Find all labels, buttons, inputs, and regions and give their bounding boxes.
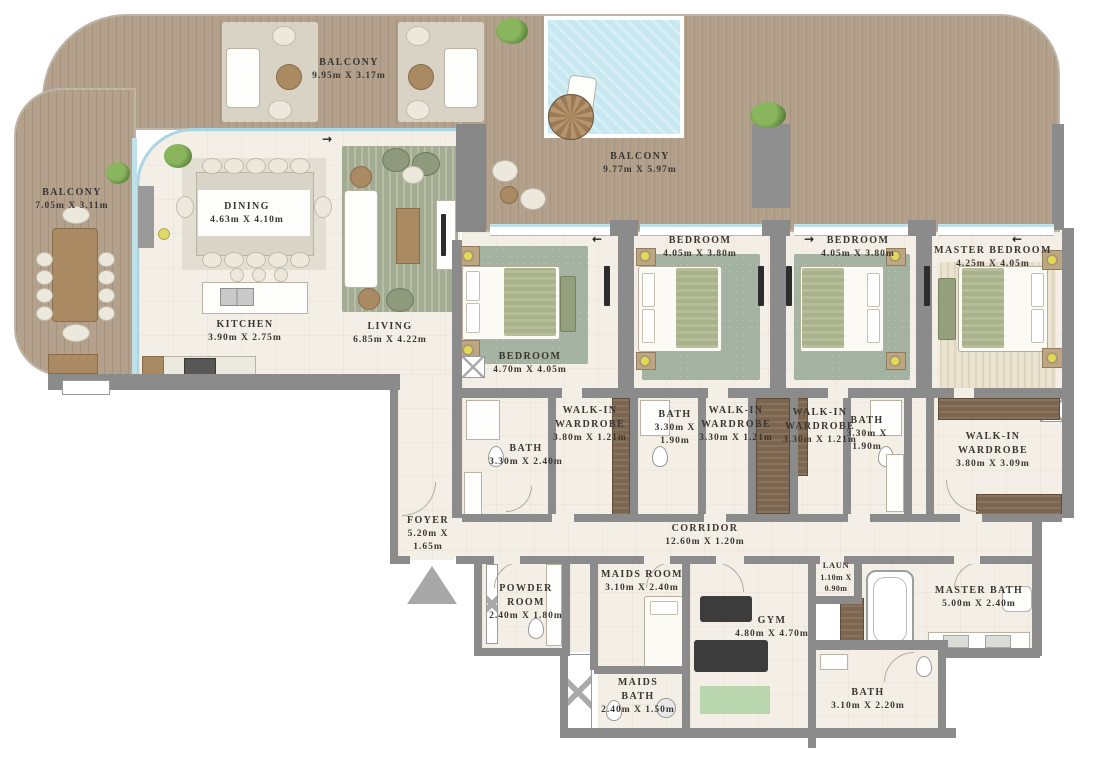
side-table [350,166,372,188]
room-label-wardrobe-2: WALK-IN WARDROBE3.30m X 1.21m [698,404,774,445]
console-cabinet [138,186,154,248]
room-label-powder-room: POWDER ROOM2.40m X 1.80m [486,582,566,623]
wall [452,240,462,388]
vanity [820,654,848,670]
wall-pier [610,220,638,236]
bar-stool [252,268,266,282]
wardrobe-unit [938,398,1060,420]
wall [560,728,956,738]
room-label-balcony-left: BALCONY7.05m X 3.11m [22,186,122,213]
room-label-laundry: LAUN1.10m X 0.90m [812,560,860,594]
outdoor-chair [62,324,90,342]
maids-bed [644,596,684,672]
outdoor-chair [98,288,115,303]
wall [452,388,462,518]
room-label-foyer: FOYER5.20m X 1.65m [399,514,457,554]
room-label-maids-room: MAIDS ROOM3.10m X 2.40m [596,568,688,595]
gym-mat [700,686,770,714]
dining-chair [290,252,310,268]
door-opening [552,514,574,522]
living-armchair [386,288,414,312]
wall-pier [456,124,486,232]
dining-chair [246,252,266,268]
wall [618,232,634,388]
door-opening [704,514,726,522]
wall [390,388,398,512]
tv-icon [441,214,446,256]
room-label-balcony-top: BALCONY9.95m X 3.17m [289,56,409,83]
balcony-chair [492,160,518,182]
wall [560,648,568,738]
outdoor-chair [36,306,53,321]
lamp-icon [462,344,474,356]
wall [944,648,1040,658]
dining-chair [224,252,244,268]
lamp-icon [889,355,901,367]
planter-box [752,124,790,208]
wall [926,396,934,516]
vanity [464,472,482,516]
door-opening [954,556,980,564]
lamp-icon [639,355,651,367]
shower [886,454,904,512]
bedroom3-blanket [802,268,844,348]
wall [808,596,862,604]
treadmill [694,640,768,672]
tv-icon [758,266,764,306]
plant-icon [164,144,192,168]
room-label-wardrobe-1: WALK-IN WARDROBE3.80m X 1.21m [550,404,630,445]
balcony-sofa [226,48,260,108]
room-label-maids-bath: MAIDS BATH2.40m X 1.50m [600,676,676,717]
room-label-living: LIVING6.85m X 4.22m [340,320,440,347]
balcony-chair [406,100,430,120]
floor-plan: → ← → ← BALCONY9.95m X 3.17m BALCONY7.05… [0,0,1102,758]
kitchen-sink [220,288,254,306]
bathtub [866,570,914,650]
toilet-icon [652,446,668,467]
wall [1052,124,1064,230]
lamp-icon [1046,352,1058,364]
wall [770,232,786,388]
outdoor-chair [98,252,115,267]
kitchen-cabinet [142,356,164,376]
room-label-bedroom-2: BEDROOM4.05m X 3.80m [645,234,755,261]
outdoor-chair [36,270,53,285]
plant-icon [496,18,528,44]
wall [630,396,638,516]
door-opening [960,514,982,522]
outdoor-chair [36,288,53,303]
outdoor-chair [36,252,53,267]
dining-chair [290,158,310,174]
tv-icon [604,266,610,306]
balcony-round-table [408,64,434,90]
wall [1032,514,1042,558]
balcony-sofa [444,48,478,108]
room-label-bath-3: BATH3.30m X 1.90m [834,414,900,454]
wall [474,558,482,656]
outdoor-chair [98,306,115,321]
door-opening [708,388,728,398]
balcony-chair [406,26,430,46]
room-label-dining: DINING4.63m X 4.10m [192,200,302,227]
dining-chair [268,158,288,174]
room-label-master-bath: MASTER BATH5.00m X 2.40m [918,584,1040,611]
door-opening [716,556,744,564]
dining-chair [268,252,288,268]
entrance-arrow [407,566,457,604]
kitchen-island [202,282,308,314]
credenza [48,354,98,374]
room-label-master-wardrobe: WALK-IN WARDROBE3.80m X 3.09m [942,430,1044,471]
master-blanket [962,268,1004,348]
wall [474,648,570,656]
glass-wall [132,138,137,374]
dining-chair [224,158,244,174]
wall [808,640,948,650]
umbrella-icon [548,94,594,140]
room-label-bedroom-1: BEDROOM4.70m X 4.05m [477,350,583,377]
balcony-round-table [500,186,518,204]
wall-pier [762,220,790,236]
wall-tag [62,380,110,395]
outdoor-chair [98,270,115,285]
room-label-bath-4: BATH3.10m X 2.20m [820,686,916,713]
room-label-bedroom-3: BEDROOM4.05m X 3.80m [803,234,913,261]
lamp-icon [462,250,474,262]
window [938,224,1054,236]
bar-stool [274,268,288,282]
room-label-bath-1: BATH3.30m X 2.40m [478,442,574,469]
outdoor-dining-table [52,228,98,322]
dining-chair [202,158,222,174]
balcony-chair [520,188,546,210]
bedroom1-bench [560,276,576,332]
master-bench [938,278,956,340]
dining-chair [314,196,332,218]
decor-bowl [158,228,170,240]
toilet-icon [916,656,932,677]
plant-icon [750,102,786,128]
shower [466,400,500,440]
wall [594,666,688,674]
door-opening [494,556,520,564]
wardrobe-unit [976,494,1062,516]
coffee-table [396,208,420,264]
room-label-master-bedroom: MASTER BEDROOM4.25m X 4.05m [928,244,1058,271]
shaft-hatch [564,654,592,730]
bedroom2-blanket [676,268,718,348]
slider-arrow: ← [592,232,602,246]
wall [938,648,946,738]
door-opening [848,514,870,522]
living-sofa [344,190,378,288]
balcony-chair [268,100,292,120]
living-chair [402,166,424,184]
room-label-balcony-pool: BALCONY9.77m X 5.97m [585,150,695,177]
room-label-gym: GYM4.80m X 4.70m [722,614,822,641]
dining-chair [246,158,266,174]
tv-icon [924,266,930,306]
door-opening [562,388,582,398]
balcony-chair [272,26,296,46]
stove-icon [184,358,216,375]
bedroom1-blanket [504,268,556,336]
wall [904,396,912,516]
side-table [358,288,380,310]
door-opening [954,388,974,398]
plant-icon [106,162,130,184]
door-opening [644,556,670,564]
bar-stool [230,268,244,282]
slider-arrow: → [322,132,332,146]
room-label-kitchen: KITCHEN3.90m X 2.75m [185,318,305,345]
wall [396,556,410,564]
wall [1062,228,1074,518]
tv-icon [786,266,792,306]
dining-chair [202,252,222,268]
door-opening [828,388,848,398]
room-label-corridor: CORRIDOR12.60m X 1.20m [640,522,770,549]
